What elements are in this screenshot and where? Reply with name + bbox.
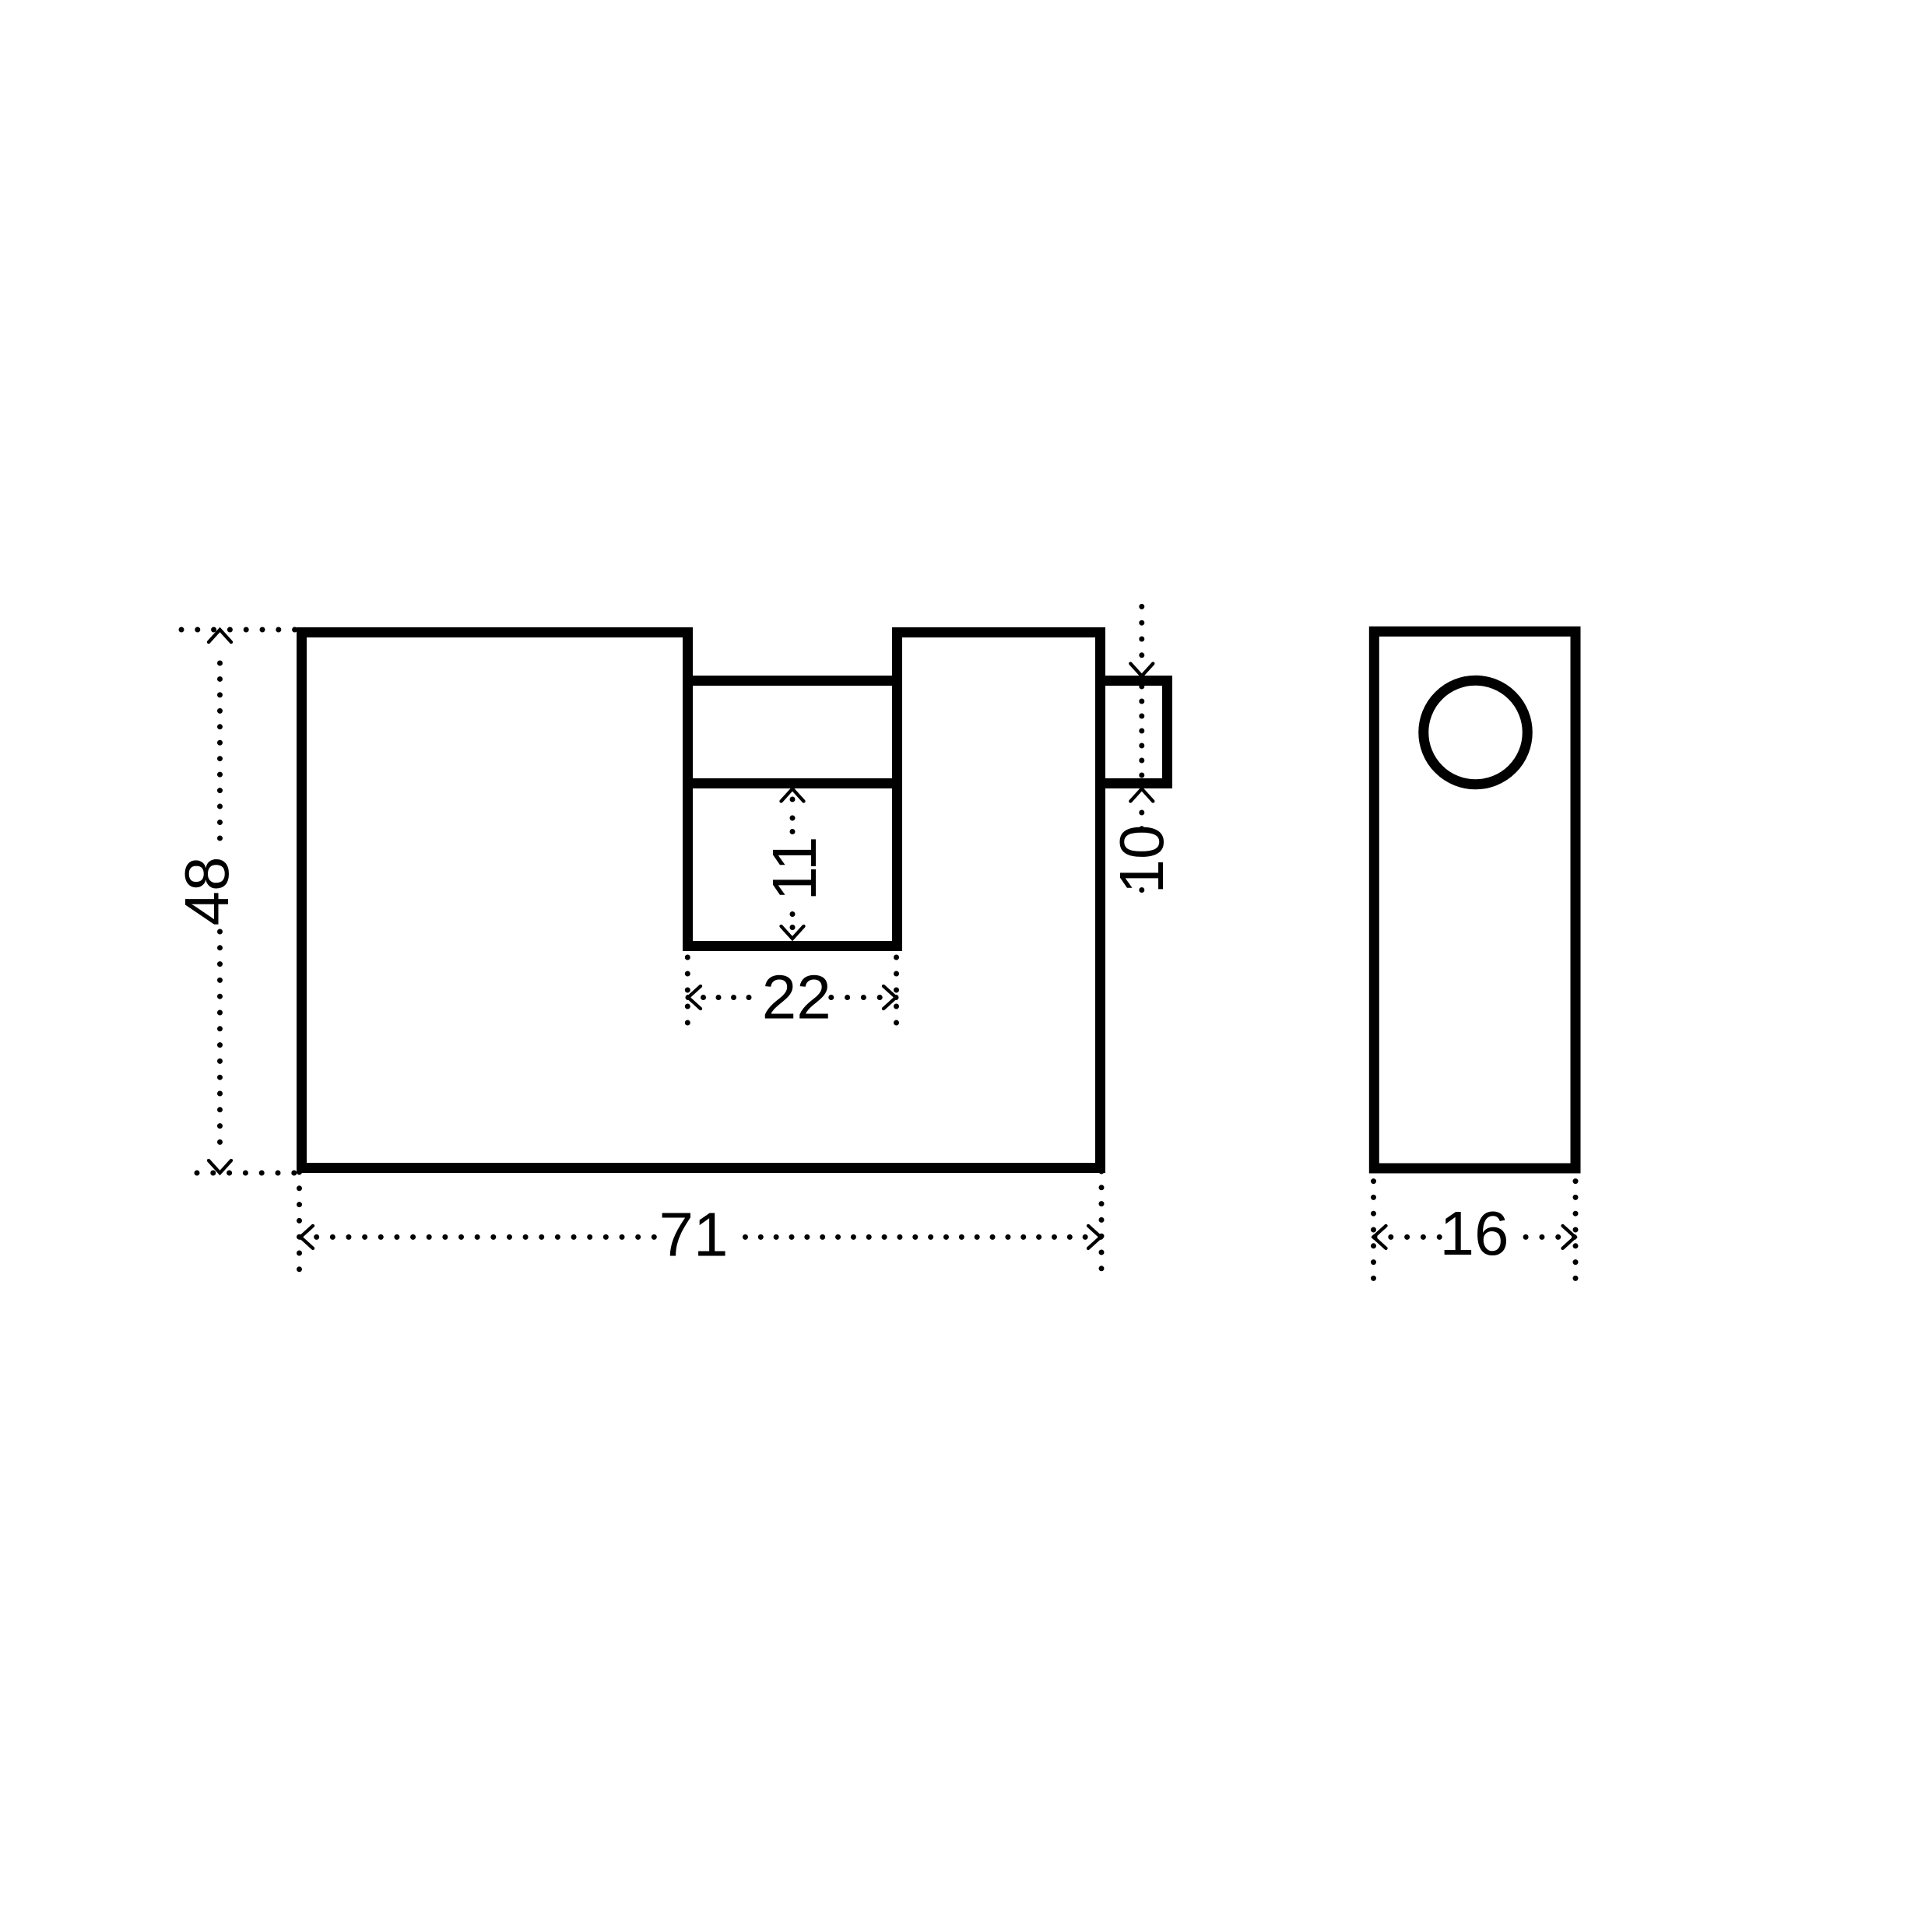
svg-text:10: 10 <box>1107 825 1176 894</box>
svg-text:71: 71 <box>659 1199 729 1269</box>
svg-text:48: 48 <box>172 857 241 926</box>
svg-text:22: 22 <box>762 962 831 1031</box>
svg-text:16: 16 <box>1440 1199 1509 1268</box>
svg-text:11: 11 <box>760 836 829 901</box>
